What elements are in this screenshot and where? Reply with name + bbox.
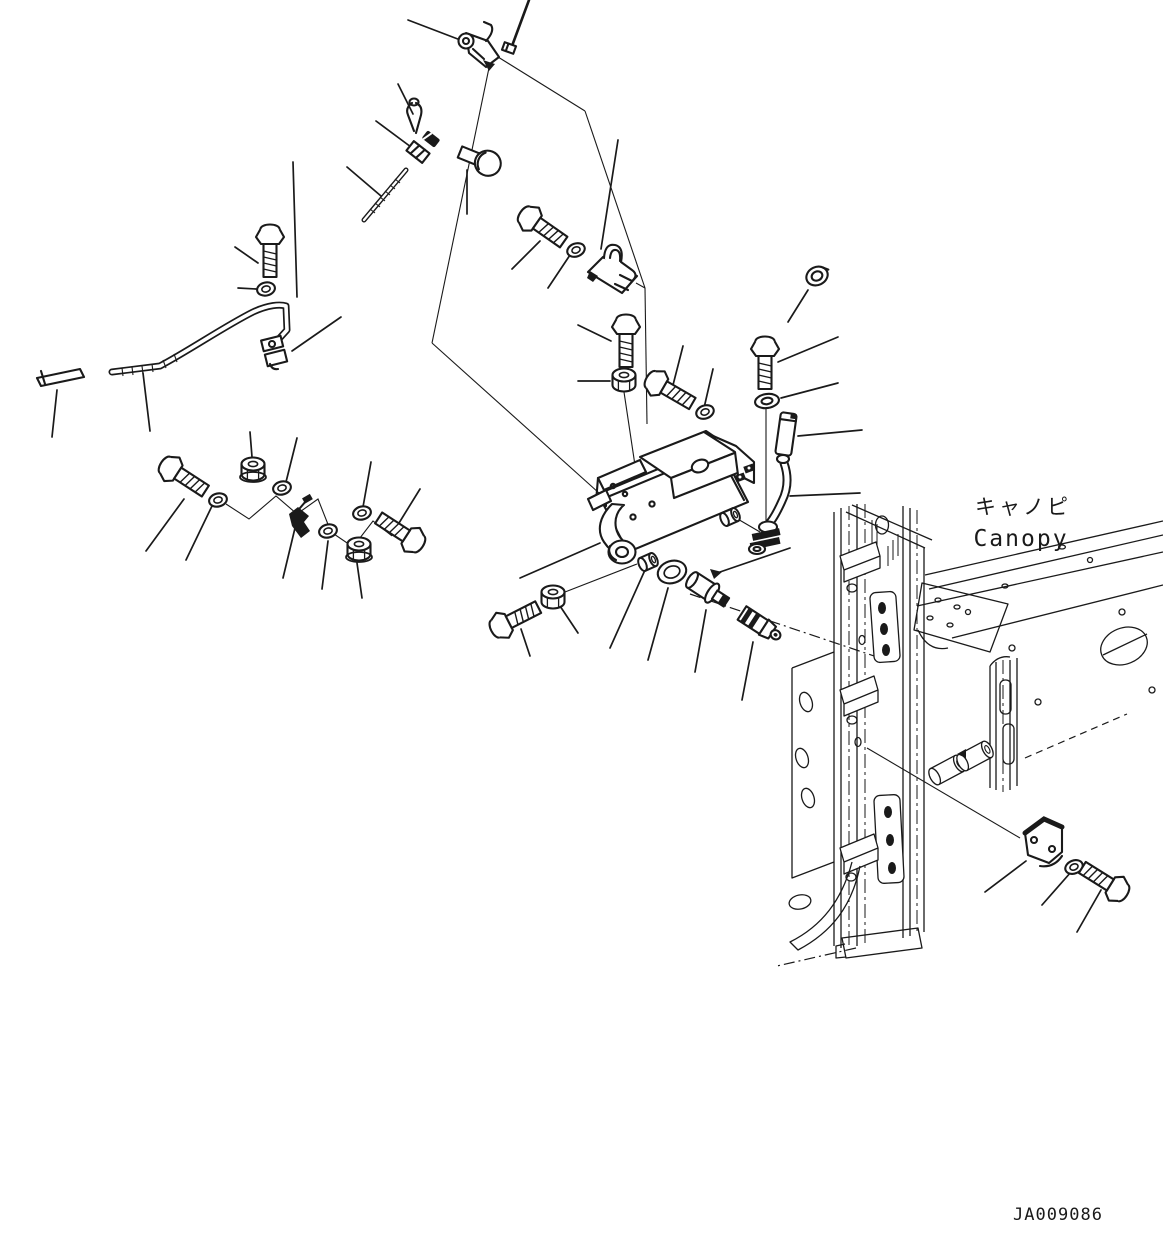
hex-nut-1: [613, 369, 636, 392]
pillar-boss-2: [840, 676, 878, 724]
cotter-pin: [407, 99, 421, 134]
pillar-bolt-strip-upper: [870, 591, 901, 663]
washer-3: [272, 480, 293, 497]
centerlines: [690, 594, 1127, 966]
mounting-bracket: [1025, 819, 1062, 866]
flange-nut-2: [346, 538, 372, 563]
large-washer: [655, 557, 689, 587]
threaded-rod: [364, 170, 406, 220]
lower-frame-member: [990, 657, 1017, 792]
pillar-boss-1: [840, 542, 880, 592]
elbow-fitting: [749, 522, 781, 555]
hex-bolt-4: [513, 200, 572, 253]
washer-7: [694, 403, 715, 421]
rod-end-clevis: [261, 336, 287, 369]
hex-bolt-8: [485, 595, 544, 644]
pillar-boss-3: [840, 834, 878, 881]
hex-bolt-1: [256, 225, 284, 278]
hex-bolt-7: [751, 337, 779, 390]
leader-lines: [52, 0, 1101, 932]
parts-diagram-page: キャノピ Canopy JA009086: [0, 0, 1163, 1249]
latch-keeper: [587, 245, 637, 293]
drain-hose: [767, 455, 789, 526]
hex-bolt-2: [154, 451, 213, 503]
washer-4: [318, 523, 339, 540]
short-rod: [37, 369, 84, 386]
pin-sleeve: [406, 141, 429, 163]
pillar-bolt-strip-lower: [874, 794, 905, 883]
washer-8: [754, 392, 780, 409]
canopy-lock-exploded-diagram: キャノピ Canopy JA009086: [0, 0, 1163, 1249]
spring-pin: [422, 130, 441, 148]
grease-fitting-1: [289, 494, 313, 538]
hex-bolt-9: [1075, 856, 1134, 908]
label-location-en: Canopy: [973, 526, 1068, 552]
plunger-tab: [710, 569, 722, 579]
release-plunger: [683, 569, 733, 612]
hex-nut-2: [542, 586, 565, 609]
drawing-number: JA009086: [1013, 1205, 1103, 1225]
bushing-2: [636, 552, 659, 573]
washer-5: [352, 505, 373, 522]
lock-bracket-assembly: [588, 431, 755, 564]
washer-1: [256, 281, 276, 297]
clevis-pin: [455, 140, 504, 179]
grease-fitting-2: [737, 605, 785, 645]
hex-bolt-3: [371, 506, 430, 558]
rubber-sleeve: [775, 412, 797, 456]
label-location-jp: キャノピ: [975, 495, 1071, 519]
lock-lever: [459, 22, 500, 71]
flange-nut-1: [240, 458, 266, 483]
hex-bolt-5: [612, 315, 640, 368]
washer-2: [208, 492, 229, 509]
lock-washer: [803, 262, 832, 288]
beam-oval-hole: [1095, 620, 1153, 671]
hex-bolt-6: [640, 365, 699, 415]
